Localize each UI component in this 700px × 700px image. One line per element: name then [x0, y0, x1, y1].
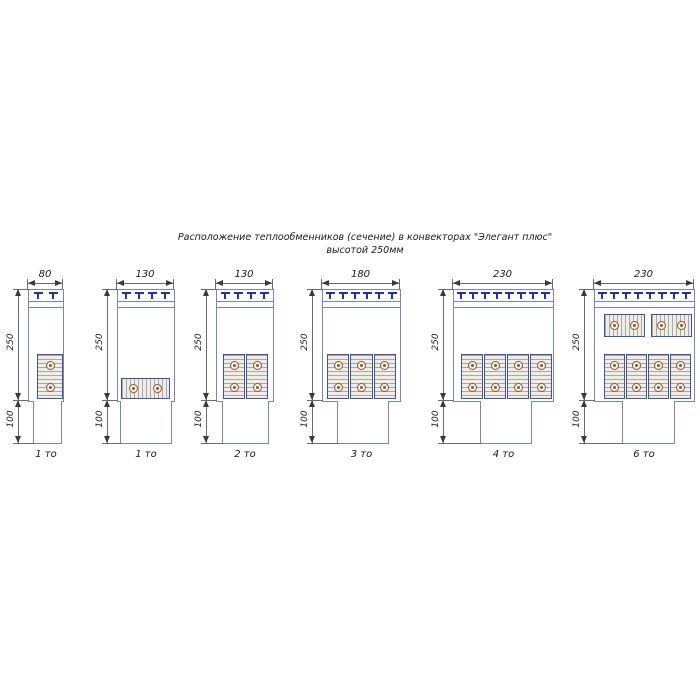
grille-line: [217, 301, 273, 302]
heat-exchanger: [223, 354, 245, 399]
extension-line: [116, 279, 117, 289]
arrow-down-icon: [15, 393, 21, 400]
tube-icon: [357, 361, 366, 370]
tee-bracket-icon: [481, 292, 490, 300]
tube-icon: [334, 383, 343, 392]
tee-bracket-icon: [260, 292, 269, 300]
arrow-down-icon: [203, 436, 209, 443]
height-dimension-label: 250: [300, 327, 310, 357]
tube-icon: [468, 383, 477, 392]
tube-icon: [677, 321, 686, 330]
grille-line: [454, 301, 553, 302]
tube-icon: [380, 361, 389, 370]
tube-icon: [46, 361, 55, 370]
arrow-right-icon: [166, 280, 173, 286]
extension-line: [201, 443, 224, 444]
extension-line: [399, 279, 400, 289]
extension-line: [438, 443, 482, 444]
extension-line: [13, 443, 35, 444]
tee-bracket-icon: [375, 292, 384, 300]
tee-bracket-icon: [49, 292, 58, 300]
tee-bracket-icon: [388, 292, 397, 300]
width-dimension-label: 230: [453, 269, 552, 280]
tube-icon: [610, 321, 619, 330]
height-dimension-label: 250: [95, 327, 105, 357]
tee-bracket-icon: [598, 292, 607, 300]
exchanger-count-label: 2 то: [210, 449, 280, 460]
tube-icon: [357, 383, 366, 392]
tee-bracket-icon: [610, 292, 619, 300]
heat-exchanger: [374, 354, 396, 399]
arrow-up-icon: [581, 289, 587, 296]
extension-line: [62, 279, 63, 289]
tee-bracket-icon: [505, 292, 514, 300]
tube-icon: [230, 383, 239, 392]
grille-line: [29, 301, 63, 302]
width-dimension-line: [594, 283, 693, 284]
tube-icon: [514, 361, 523, 370]
tube-icon: [230, 361, 239, 370]
exchanger-count-label: 1 то: [22, 449, 70, 460]
convector-diagram-130-2to: 130: [188, 265, 280, 475]
extension-line: [579, 400, 595, 401]
convector-diagram-130-1to: 130 250 100: [89, 265, 181, 475]
drawing-canvas: Расположение теплообменников (сечение) в…: [0, 0, 700, 700]
tube-icon: [610, 383, 619, 392]
exchanger-count-label: 3 то: [316, 449, 407, 460]
tube-icon: [468, 361, 477, 370]
tube-icon: [610, 361, 619, 370]
width-dimension-line: [453, 283, 552, 284]
arrow-down-icon: [104, 436, 110, 443]
heat-exchanger: [604, 314, 645, 337]
extension-line: [201, 289, 217, 290]
extension-line: [201, 400, 217, 401]
heat-exchanger: [350, 354, 372, 399]
exchanger-count-label: 4 то: [447, 449, 560, 460]
tube-icon: [676, 383, 685, 392]
heat-exchanger-group: [223, 354, 268, 399]
grille-tees: [118, 292, 174, 301]
tee-bracket-icon: [339, 292, 348, 300]
heat-exchanger: [327, 354, 349, 399]
arrow-left-icon: [453, 280, 460, 286]
tee-bracket-icon: [457, 292, 466, 300]
arrow-up-icon: [104, 289, 110, 296]
tube-icon: [129, 384, 138, 393]
tee-bracket-icon: [234, 292, 243, 300]
convector-body: [28, 289, 64, 402]
heat-exchanger-group-top: [604, 314, 692, 337]
arrow-left-icon: [28, 280, 35, 286]
arrow-up-icon: [15, 289, 21, 296]
arrow-right-icon: [392, 280, 399, 286]
heat-exchanger-group: [121, 378, 170, 399]
heat-exchanger: [626, 354, 647, 399]
title-line-2: высотой 250мм: [150, 244, 580, 257]
width-dimension-label: 130: [117, 269, 173, 280]
extension-line: [272, 279, 273, 289]
tube-icon: [46, 383, 55, 392]
tube-icon: [657, 321, 666, 330]
extension-line: [438, 400, 454, 401]
height-dimension-label: 250: [572, 327, 582, 357]
exchanger-count-label: 1 то: [111, 449, 181, 460]
width-dimension-label: 130: [216, 269, 272, 280]
arrow-right-icon: [686, 280, 693, 286]
tee-bracket-icon: [493, 292, 502, 300]
arrow-up-icon: [440, 289, 446, 296]
convector-diagram-80-1to: 80 250 100 1 то: [0, 265, 70, 475]
heat-exchanger: [651, 314, 692, 337]
width-dimension-label: 230: [594, 269, 693, 280]
arrow-up-icon: [203, 289, 209, 296]
width-dimension-label: 80: [28, 269, 62, 280]
height-dimension-label: 250: [194, 327, 204, 357]
tee-bracket-icon: [363, 292, 372, 300]
extension-line: [307, 443, 339, 444]
tube-icon: [676, 361, 685, 370]
heat-exchanger: [484, 354, 506, 399]
convector-body: [322, 289, 401, 402]
duct-dimension-label: 100: [6, 404, 16, 434]
extension-line: [27, 279, 28, 289]
tee-bracket-icon: [541, 292, 550, 300]
extension-line: [452, 279, 453, 289]
tee-bracket-icon: [148, 292, 157, 300]
extension-line: [593, 279, 594, 289]
grille-line: [323, 301, 400, 302]
tube-icon: [253, 383, 262, 392]
tee-bracket-icon: [682, 292, 691, 300]
tube-icon: [253, 361, 262, 370]
tube-icon: [654, 361, 663, 370]
extension-line: [173, 279, 174, 289]
heat-exchanger: [604, 354, 625, 399]
width-dimension-label: 180: [322, 269, 399, 280]
heat-exchanger-group-bottom: [604, 354, 691, 399]
heat-exchanger-group: [37, 354, 63, 399]
arrow-down-icon: [440, 436, 446, 443]
grille-line: [118, 301, 174, 302]
tube-icon: [491, 383, 500, 392]
extension-line: [579, 289, 595, 290]
arrow-down-icon: [15, 436, 21, 443]
tube-icon: [537, 383, 546, 392]
height-dimension-label: 250: [431, 327, 441, 357]
arrow-right-icon: [265, 280, 272, 286]
arrow-left-icon: [216, 280, 223, 286]
width-dimension-line: [216, 283, 272, 284]
tube-icon: [632, 361, 641, 370]
extension-line: [215, 279, 216, 289]
tee-bracket-icon: [122, 292, 131, 300]
arrow-left-icon: [594, 280, 601, 286]
heat-exchanger: [648, 354, 669, 399]
tube-icon: [514, 383, 523, 392]
heat-exchanger: [530, 354, 552, 399]
convector-diagram-230-6to: 230: [566, 265, 700, 475]
tube-icon: [632, 383, 641, 392]
tube-icon: [491, 361, 500, 370]
arrow-down-icon: [581, 436, 587, 443]
duct-dimension-label: 100: [431, 404, 441, 434]
drawing-title: Расположение теплообменников (сечение) в…: [150, 231, 580, 257]
arrow-down-icon: [309, 393, 315, 400]
grille-tees: [29, 292, 63, 301]
grille-tees: [217, 292, 273, 301]
convector-body: [594, 289, 695, 402]
arrow-down-icon: [203, 393, 209, 400]
grille-line: [118, 307, 174, 308]
heat-exchanger: [670, 354, 691, 399]
extension-line: [552, 279, 553, 289]
tee-bracket-icon: [469, 292, 478, 300]
duct-dimension-label: 100: [194, 404, 204, 434]
tee-bracket-icon: [161, 292, 170, 300]
grille-line: [323, 307, 400, 308]
arrow-left-icon: [322, 280, 329, 286]
extension-line: [102, 289, 118, 290]
convector-body: [117, 289, 175, 402]
extension-line: [307, 289, 323, 290]
tee-bracket-icon: [529, 292, 538, 300]
height-dimension-line: [312, 289, 313, 400]
grille-tees: [595, 292, 694, 301]
arrow-left-icon: [117, 280, 124, 286]
extension-line: [438, 289, 454, 290]
tee-bracket-icon: [670, 292, 679, 300]
duct-dimension-label: 100: [572, 404, 582, 434]
tube-icon: [380, 383, 389, 392]
tube-icon: [153, 384, 162, 393]
height-dimension-line: [584, 289, 585, 400]
lower-duct: [120, 401, 172, 444]
width-dimension-line: [117, 283, 173, 284]
tee-bracket-icon: [622, 292, 631, 300]
tube-icon: [537, 361, 546, 370]
grille-line: [454, 307, 553, 308]
heat-exchanger: [507, 354, 529, 399]
grille-tees: [323, 292, 400, 301]
lower-duct: [33, 401, 62, 444]
tee-bracket-icon: [634, 292, 643, 300]
height-dimension-line: [107, 289, 108, 400]
exchanger-count-label: 6 то: [588, 449, 700, 460]
duct-dimension-label: 100: [95, 404, 105, 434]
grille-tees: [454, 292, 553, 301]
arrow-right-icon: [55, 280, 62, 286]
arrow-down-icon: [581, 393, 587, 400]
heat-exchanger: [37, 354, 63, 399]
arrow-down-icon: [104, 393, 110, 400]
height-dimension-line: [206, 289, 207, 400]
convector-diagram-180-3to: 180: [294, 265, 407, 475]
height-dimension-line: [443, 289, 444, 400]
extension-line: [321, 279, 322, 289]
extension-line: [102, 443, 122, 444]
tube-icon: [334, 361, 343, 370]
extension-line: [102, 400, 118, 401]
convector-body: [453, 289, 554, 402]
tee-bracket-icon: [517, 292, 526, 300]
height-dimension-label: 250: [6, 327, 16, 357]
convector-diagram-230-4to: 230: [425, 265, 560, 475]
tee-bracket-icon: [221, 292, 230, 300]
title-line-1: Расположение теплообменников (сечение) в…: [150, 231, 580, 244]
height-dimension-line: [18, 289, 19, 400]
duct-dimension-label: 100: [300, 404, 310, 434]
arrow-up-icon: [309, 289, 315, 296]
grille-line: [595, 301, 694, 302]
grille-line: [29, 307, 63, 308]
grille-line: [217, 307, 273, 308]
tee-bracket-icon: [247, 292, 256, 300]
tee-bracket-icon: [135, 292, 144, 300]
grille-line: [595, 307, 694, 308]
lower-duct: [480, 401, 532, 444]
arrow-right-icon: [545, 280, 552, 286]
lower-duct: [622, 401, 675, 444]
heat-exchanger: [121, 378, 170, 399]
tube-icon: [654, 383, 663, 392]
extension-line: [13, 289, 29, 290]
heat-exchanger-group: [327, 354, 396, 399]
tee-bracket-icon: [326, 292, 335, 300]
convector-body: [216, 289, 274, 402]
tee-bracket-icon: [351, 292, 360, 300]
arrow-down-icon: [440, 393, 446, 400]
extension-line: [579, 443, 624, 444]
heat-exchanger: [246, 354, 268, 399]
heat-exchanger: [461, 354, 483, 399]
extension-line: [307, 400, 323, 401]
heat-exchanger-group: [461, 354, 552, 399]
arrow-down-icon: [309, 436, 315, 443]
tee-bracket-icon: [658, 292, 667, 300]
lower-duct: [337, 401, 389, 444]
extension-line: [13, 400, 29, 401]
width-dimension-line: [322, 283, 399, 284]
tee-bracket-icon: [34, 292, 43, 300]
tube-icon: [630, 321, 639, 330]
tee-bracket-icon: [646, 292, 655, 300]
extension-line: [693, 279, 694, 289]
lower-duct: [222, 401, 269, 444]
